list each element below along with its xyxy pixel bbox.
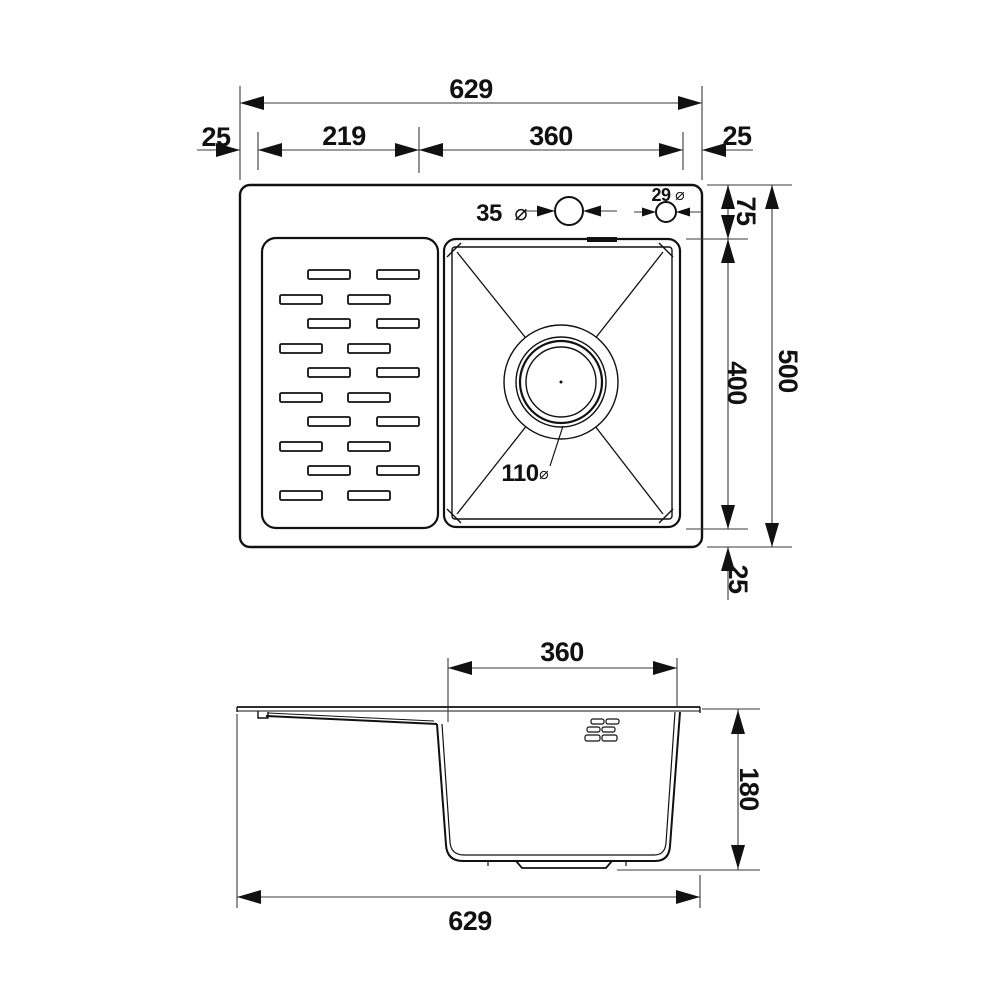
- side-view: 360 180 629: [237, 637, 764, 936]
- dim-accessory-hole: 29: [651, 185, 671, 205]
- diameter-symbol: ⌀: [514, 200, 527, 225]
- dim-bowl-length: 400: [722, 361, 752, 405]
- dim-overall-width-top: 629: [449, 74, 493, 104]
- drainboard: [262, 238, 438, 528]
- overflow-slots-sideview: [585, 719, 619, 741]
- diameter-symbol: ⌀: [539, 466, 549, 483]
- drain-center-dot: [560, 381, 563, 384]
- diameter-symbol: ⌀: [675, 187, 685, 204]
- dim-left-offset: 25: [201, 122, 231, 152]
- overflow-slot-topview: [587, 237, 617, 242]
- side-dimensions: [237, 658, 760, 908]
- dim-bowl-width-side: 360: [540, 637, 584, 667]
- dim-bowl-depth: 180: [734, 767, 764, 811]
- dim-right-offset: 25: [722, 121, 752, 151]
- bowl: [444, 237, 680, 527]
- top-horizontal-arrows: [216, 96, 726, 157]
- drawing-svg: 35 ⌀ 29 ⌀ 110 ⌀: [0, 0, 1000, 1000]
- dim-overall-depth: 500: [773, 349, 803, 393]
- dim-top-offset: 75: [731, 196, 761, 226]
- side-profile: [237, 707, 700, 868]
- dim-bottom-offset: 25: [723, 564, 753, 594]
- sink-technical-drawing: 35 ⌀ 29 ⌀ 110 ⌀: [0, 0, 1000, 1000]
- dim-overall-width-bottom: 629: [448, 906, 492, 936]
- top-view: 35 ⌀ 29 ⌀ 110 ⌀: [197, 74, 803, 600]
- dim-drain: 110: [501, 460, 538, 487]
- drain: [504, 325, 618, 439]
- dim-faucet-hole: 35: [476, 200, 502, 227]
- drain-stub: [516, 861, 612, 868]
- side-arrows: [237, 661, 745, 904]
- dim-drainboard-width: 219: [322, 121, 366, 151]
- dim-bowl-width-top: 360: [529, 121, 573, 151]
